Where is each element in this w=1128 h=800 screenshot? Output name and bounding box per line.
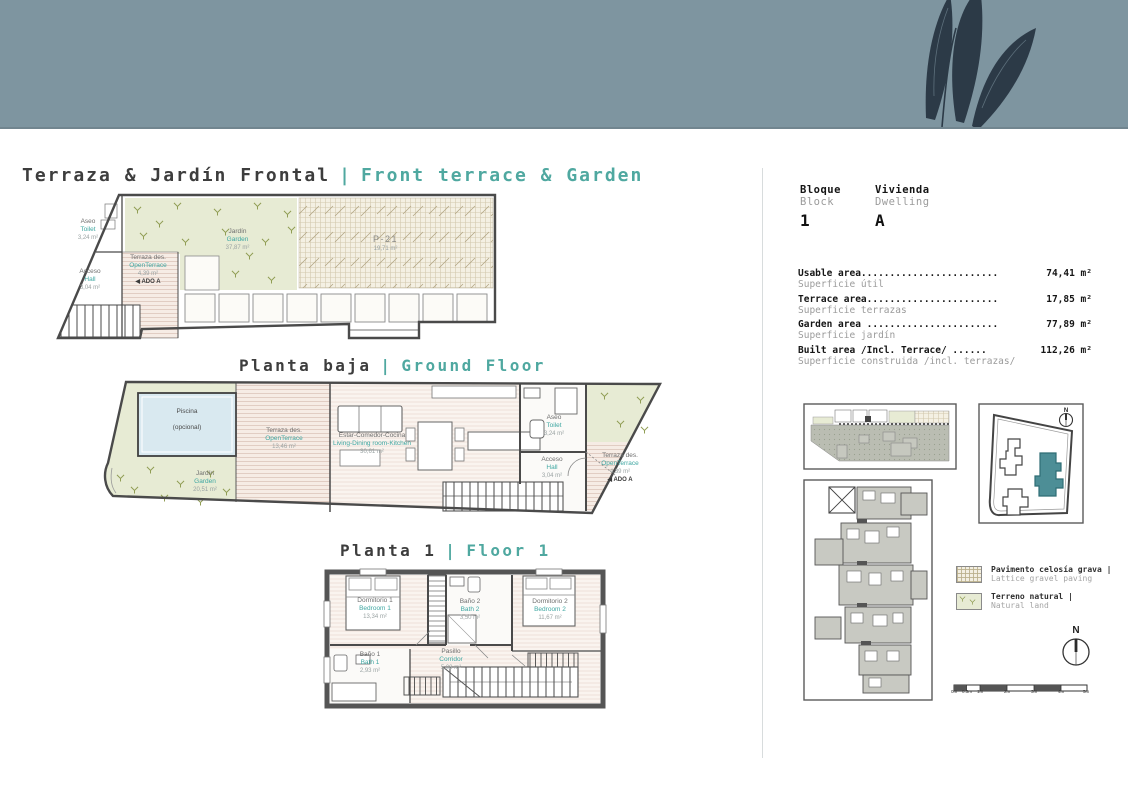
title-separator: | (339, 165, 352, 186)
natural-land-swatch (956, 593, 982, 610)
ground-plan-drawing (100, 380, 662, 520)
page-title-en: Front terrace & Garden (361, 165, 643, 186)
area-row: Terrace area.......................17,85… (798, 294, 1092, 316)
terrace-garden-floorplan: Jardín Garden 37,87 m² P-21 19,71 m² Ter… (35, 192, 505, 344)
lattice-swatch (956, 566, 982, 583)
scale-tick: 3m (1031, 689, 1037, 694)
site-keyplan-thumbnail (803, 403, 957, 475)
scale-tick: 0.5m (962, 689, 972, 694)
compass-icon: N (1056, 622, 1096, 675)
unit-info: Bloque Block 1 Vivienda Dwelling A (800, 184, 930, 230)
ground-floor-title: Planta baja|Ground Floor (239, 356, 546, 375)
panel-divider (762, 168, 763, 758)
scale-tick: 0m (951, 689, 957, 694)
terrace-plan-drawing (35, 192, 505, 344)
area-summary: Usable area........................74,41… (798, 268, 1092, 370)
scale-tick: 1m (977, 689, 983, 694)
location-keyplan-thumbnail: N (978, 403, 1084, 529)
scale-bar: 0m 0.5m 1m 2m 3m 4m 5m (953, 680, 1093, 698)
legend: Pavimento celosía grava | Lattice gravel… (956, 565, 1111, 619)
scale-tick: 4m (1058, 689, 1064, 694)
area-row: Built area /Incl. Terrace/ ......112,26 … (798, 345, 1092, 367)
ground-floor-floorplan: Piscina (opcional) Jardín Garden 20,51 m… (100, 380, 662, 520)
dwelling-letter: A (875, 211, 930, 230)
scale-tick: 2m (1004, 689, 1010, 694)
floor1-plan-drawing (320, 565, 610, 713)
leaf-illustration (898, 0, 1088, 127)
building-keyplan-thumbnail (803, 479, 933, 706)
area-row: Garden area .......................77,89… (798, 319, 1092, 341)
legend-item-natural: Terreno natural | Natural land (956, 592, 1111, 610)
scale-tick: 5m (1083, 689, 1089, 694)
header-band (0, 0, 1128, 129)
block-number: 1 (800, 211, 841, 230)
floor1-floorplan: Dormitorio 1 Bedroom 1 13,34 m² Baño 2 B… (320, 565, 610, 713)
svg-text:N: N (1072, 625, 1079, 636)
page-title: Terraza & Jardín Frontal|Front terrace &… (22, 165, 643, 186)
legend-item-lattice: Pavimento celosía grava | Lattice gravel… (956, 565, 1111, 583)
area-row: Usable area........................74,41… (798, 268, 1092, 290)
dwelling-info: Vivienda Dwelling A (875, 184, 930, 230)
floor1-title: Planta 1|Floor 1 (340, 541, 551, 560)
page-title-es: Terraza & Jardín Frontal (22, 165, 330, 186)
block-info: Bloque Block 1 (800, 184, 841, 230)
